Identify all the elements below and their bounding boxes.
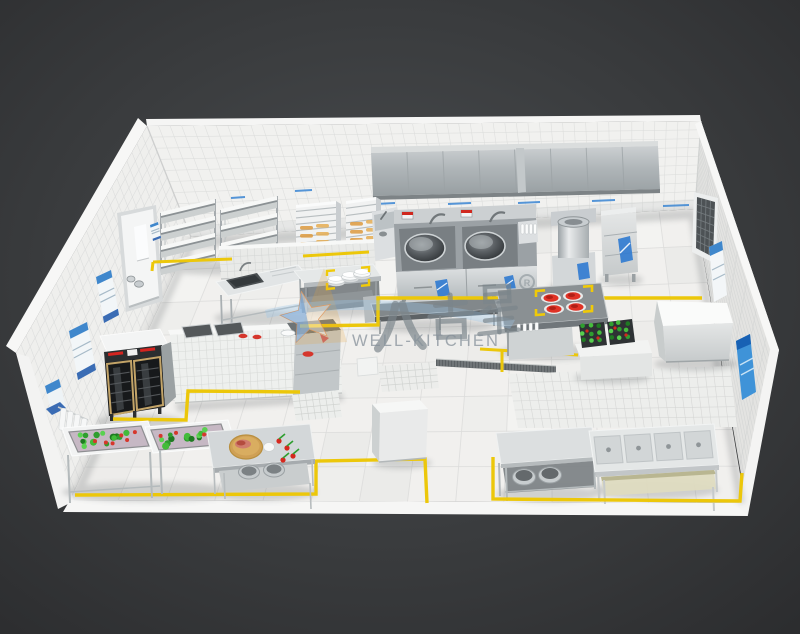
svg-text:WELL-KITCHEN: WELL-KITCHEN <box>352 332 500 350</box>
svg-text:R: R <box>524 278 531 288</box>
